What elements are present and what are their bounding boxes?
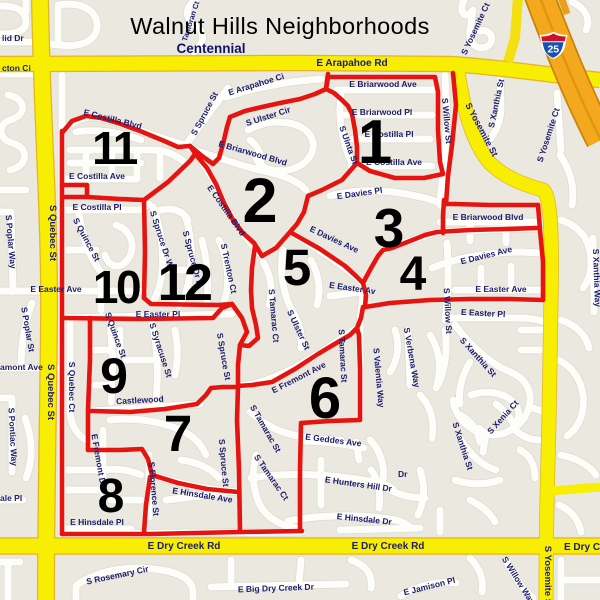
svg-text:Dr: Dr xyxy=(398,469,408,479)
svg-text:E Dry Creek Rd: E Dry Creek Rd xyxy=(148,541,221,552)
svg-text:6: 6 xyxy=(309,366,341,431)
svg-text:Centennial: Centennial xyxy=(176,41,245,56)
svg-text:2: 2 xyxy=(242,166,277,236)
svg-text:E Briarwood Blvd: E Briarwood Blvd xyxy=(453,212,524,222)
svg-text:lid Dr: lid Dr xyxy=(2,33,24,43)
svg-text:E Dry C: E Dry C xyxy=(564,542,600,553)
svg-text:S Yosemite St: S Yosemite St xyxy=(542,546,553,600)
svg-text:S Quebec St: S Quebec St xyxy=(47,205,58,262)
svg-text:1: 1 xyxy=(358,108,392,177)
svg-text:E Briarwood Ave: E Briarwood Ave xyxy=(349,79,417,89)
svg-text:9: 9 xyxy=(100,348,128,404)
svg-text:amont Ave: amont Ave xyxy=(0,362,43,372)
svg-text:8: 8 xyxy=(98,470,125,523)
svg-text:11: 11 xyxy=(92,122,138,174)
svg-text:4: 4 xyxy=(400,248,427,301)
svg-text:E Easter Ave: E Easter Ave xyxy=(475,284,527,294)
svg-text:7: 7 xyxy=(164,405,192,462)
svg-text:25: 25 xyxy=(547,44,559,56)
svg-text:E Costilla Pl: E Costilla Pl xyxy=(72,202,121,212)
svg-text:12: 12 xyxy=(158,254,211,312)
svg-text:Walnut Hills Neighborhoods: Walnut Hills Neighborhoods xyxy=(130,13,430,39)
svg-text:S Quebec Ct: S Quebec Ct xyxy=(67,362,77,413)
svg-text:10: 10 xyxy=(93,261,140,313)
svg-text:S Quebec St: S Quebec St xyxy=(45,364,56,421)
svg-text:E Dry Creek Rd: E Dry Creek Rd xyxy=(352,541,425,552)
svg-text:ale Pl: ale Pl xyxy=(0,493,22,503)
svg-text:cton Ci: cton Ci xyxy=(2,63,31,73)
svg-text:5: 5 xyxy=(283,239,311,296)
svg-text:E Easter Ave: E Easter Ave xyxy=(30,284,82,294)
svg-text:E Arapahoe Rd: E Arapahoe Rd xyxy=(316,58,387,69)
